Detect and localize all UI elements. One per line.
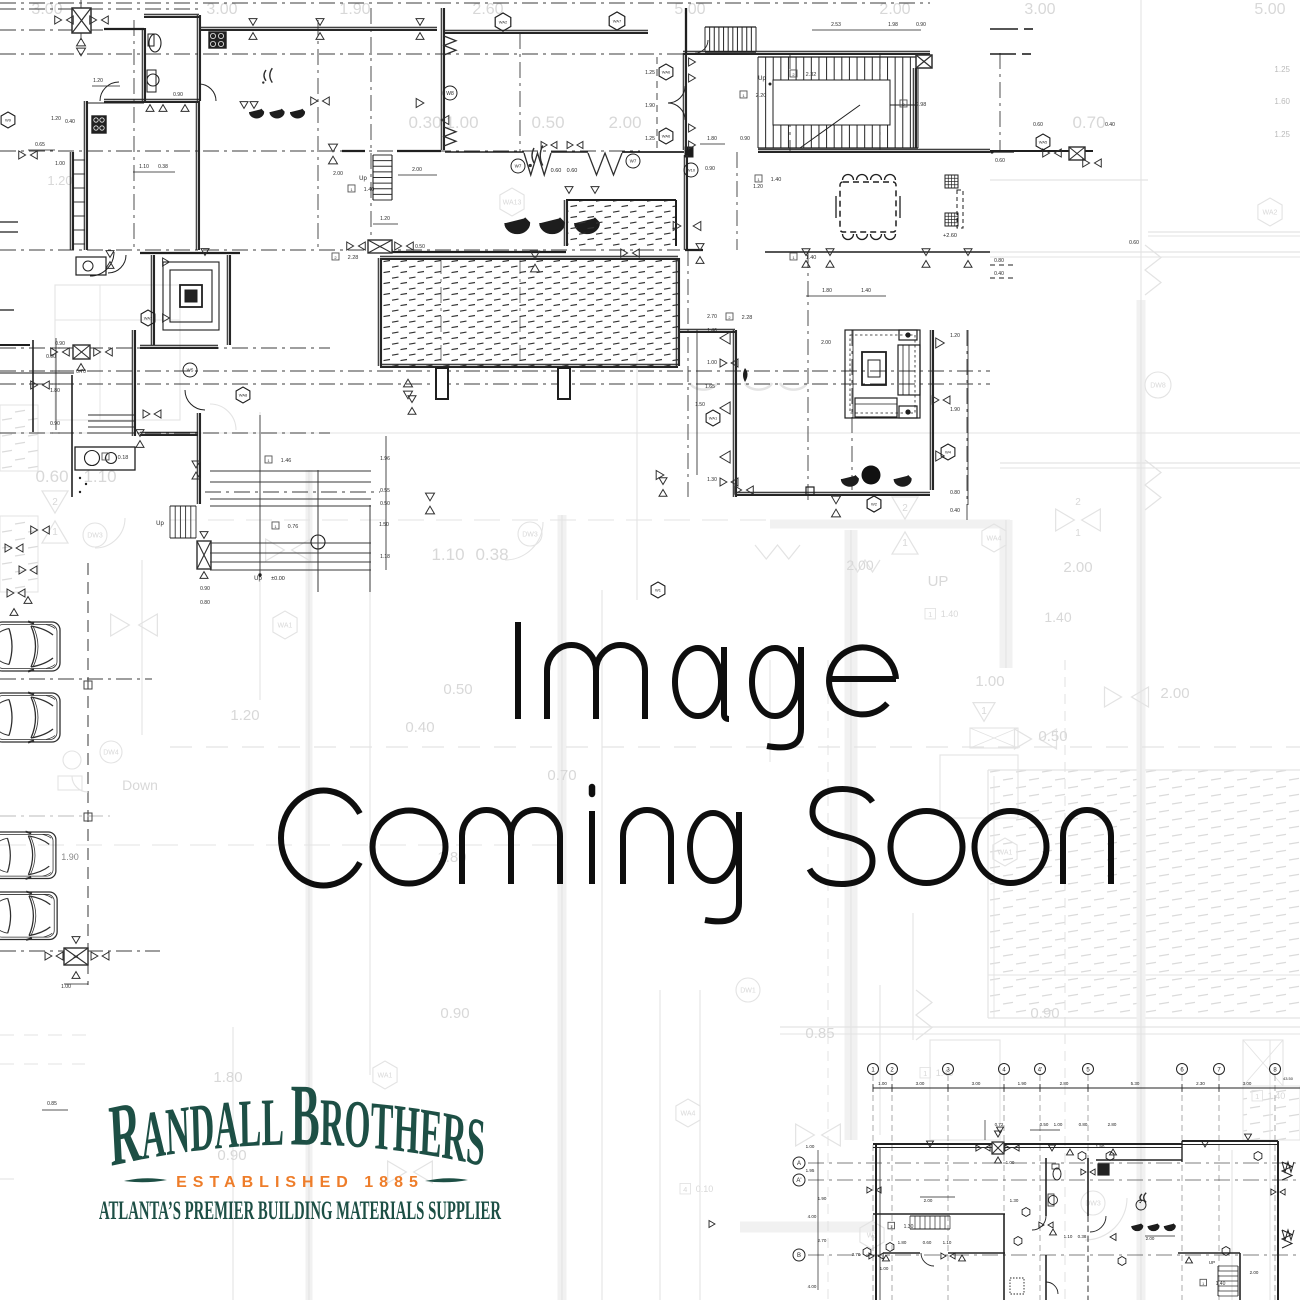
- svg-text:Up: Up: [359, 176, 367, 182]
- svg-text:0.40: 0.40: [1105, 122, 1115, 128]
- svg-text:Up: Up: [156, 521, 164, 527]
- svg-text:1.30: 1.30: [707, 477, 717, 483]
- svg-text:0.80: 0.80: [994, 258, 1004, 264]
- svg-text:DW3: DW3: [87, 533, 103, 540]
- svg-text:1.00: 1.00: [878, 1081, 887, 1086]
- svg-text:1: 1: [890, 1225, 892, 1229]
- svg-text:1: 1: [1255, 1092, 1259, 1101]
- svg-text:2.00: 2.00: [1146, 1236, 1155, 1241]
- svg-text:3.00: 3.00: [1024, 1, 1055, 18]
- svg-text:0.60: 0.60: [923, 1240, 932, 1245]
- svg-text:1.90: 1.90: [339, 1, 370, 18]
- svg-text:0.60: 0.60: [567, 168, 578, 174]
- svg-text:2.00: 2.00: [1160, 685, 1189, 702]
- svg-text:0.10: 0.10: [696, 1184, 714, 1194]
- svg-text:1.10: 1.10: [1064, 1234, 1073, 1239]
- svg-text:1.10: 1.10: [431, 545, 464, 564]
- svg-text:WA1: WA1: [378, 1072, 393, 1079]
- svg-text:DW4: DW4: [103, 750, 119, 757]
- svg-text:1.00: 1.00: [61, 984, 71, 990]
- svg-text:0.90: 0.90: [50, 421, 60, 427]
- svg-text:0.90: 0.90: [200, 586, 210, 592]
- svg-text:0.38: 0.38: [158, 164, 168, 170]
- svg-text:WA8: WA8: [239, 392, 248, 397]
- svg-text:1.65: 1.65: [705, 384, 715, 390]
- svg-text:1.00: 1.00: [1054, 1122, 1063, 1127]
- svg-text:1.80: 1.80: [822, 288, 832, 294]
- svg-text:DW3: DW3: [522, 532, 538, 539]
- svg-text:1.90: 1.90: [1018, 1081, 1027, 1086]
- svg-text:3.00: 3.00: [206, 1, 237, 18]
- svg-text:0.90: 0.90: [916, 22, 926, 28]
- svg-text:1.80: 1.80: [50, 388, 60, 394]
- svg-text:A': A': [796, 1178, 801, 1184]
- svg-text:WA1: WA1: [998, 849, 1013, 856]
- svg-text:1.25: 1.25: [645, 70, 655, 76]
- svg-text:ESTABLISHED 1885: ESTABLISHED 1885: [176, 1174, 424, 1191]
- svg-text:1: 1: [52, 527, 58, 538]
- svg-text:2.00: 2.00: [1063, 559, 1092, 576]
- svg-text:W8: W8: [446, 91, 454, 97]
- svg-text:1.20: 1.20: [51, 116, 61, 122]
- svg-text:2.00: 2.00: [333, 171, 343, 177]
- svg-text:0.70: 0.70: [547, 767, 576, 784]
- svg-text:DW8: DW8: [1150, 383, 1166, 390]
- svg-text:W1: W1: [655, 587, 662, 592]
- svg-text:3.00: 3.00: [972, 1081, 981, 1086]
- svg-text:1: 1: [981, 706, 987, 717]
- svg-text:1.50: 1.50: [379, 522, 389, 528]
- svg-text:1.30: 1.30: [1010, 1198, 1019, 1203]
- svg-text:0.30: 0.30: [408, 113, 441, 132]
- svg-text:W4: W4: [945, 449, 952, 454]
- svg-text:4.98: 4.98: [916, 102, 927, 108]
- svg-text:WA2: WA2: [1263, 209, 1278, 216]
- svg-text:1.40: 1.40: [861, 288, 871, 294]
- svg-text:Up: Up: [254, 576, 262, 582]
- svg-text:1.80: 1.80: [707, 136, 717, 142]
- svg-text:3.70: 3.70: [852, 1252, 861, 1257]
- svg-text:0.50: 0.50: [415, 244, 425, 250]
- svg-text:1.20: 1.20: [230, 707, 259, 724]
- svg-text:0.90: 0.90: [705, 166, 715, 172]
- svg-text:Up: Up: [758, 76, 766, 82]
- svg-text:WA1: WA1: [278, 622, 293, 629]
- svg-text:1: 1: [923, 1069, 927, 1078]
- svg-text:43.50: 43.50: [1283, 1076, 1294, 1081]
- svg-text:1.80: 1.80: [213, 1069, 242, 1086]
- svg-text:1.60: 1.60: [1274, 97, 1290, 106]
- svg-text:WA1: WA1: [709, 415, 718, 420]
- svg-text:DW1: DW1: [740, 988, 756, 995]
- svg-text:0.70: 0.70: [1072, 113, 1105, 132]
- svg-text:1.46: 1.46: [281, 458, 292, 464]
- svg-text:0.55: 0.55: [380, 488, 390, 494]
- svg-text:WA7: WA7: [613, 18, 622, 23]
- svg-text:2.28: 2.28: [348, 255, 359, 261]
- svg-text:1.00: 1.00: [806, 1144, 815, 1149]
- svg-text:1.90: 1.90: [818, 1196, 827, 1201]
- svg-text:ATLANTA’S PREMIER BUILDING MAT: ATLANTA’S PREMIER BUILDING MATERIALS SUP…: [99, 1196, 501, 1225]
- svg-text:1.40: 1.40: [806, 255, 817, 261]
- svg-text:1.40: 1.40: [941, 609, 959, 619]
- svg-text:1.00: 1.00: [707, 360, 717, 366]
- svg-text:0.60: 0.60: [1033, 122, 1043, 128]
- svg-text:1.20: 1.20: [47, 173, 72, 188]
- svg-text:0.60: 0.60: [995, 158, 1005, 164]
- svg-text:2.80: 2.80: [1060, 1081, 1069, 1086]
- svg-text:W7: W7: [515, 164, 522, 169]
- svg-text:0.60: 0.60: [1129, 240, 1139, 246]
- svg-text:2: 2: [1075, 497, 1081, 508]
- svg-text:1.10: 1.10: [943, 1240, 952, 1245]
- svg-text:A: A: [797, 1161, 801, 1167]
- svg-text:W9: W9: [5, 117, 12, 122]
- svg-text:1.90: 1.90: [61, 852, 79, 862]
- svg-text:0.72: 0.72: [995, 1122, 1004, 1127]
- svg-text:0.50: 0.50: [443, 681, 472, 698]
- svg-text:1.95: 1.95: [806, 1168, 815, 1173]
- svg-text:0.90: 0.90: [1030, 1005, 1059, 1022]
- svg-text:1.40: 1.40: [1044, 609, 1071, 625]
- svg-text:4.00: 4.00: [808, 1214, 817, 1219]
- svg-text:0.80: 0.80: [200, 600, 210, 606]
- svg-text:2.70: 2.70: [818, 1238, 827, 1243]
- svg-text:1.18: 1.18: [380, 554, 390, 560]
- svg-text:+2.60: +2.60: [943, 233, 957, 239]
- svg-text:0.40: 0.40: [950, 508, 960, 514]
- svg-text:WA13: WA13: [503, 199, 522, 206]
- svg-text:1.00: 1.00: [880, 1266, 889, 1271]
- svg-text:0.40: 0.40: [994, 271, 1004, 277]
- svg-text:W5: W5: [187, 368, 194, 373]
- svg-text:WA4: WA4: [987, 535, 1002, 542]
- svg-text:1.96: 1.96: [380, 456, 390, 462]
- svg-text:2.20: 2.20: [756, 93, 767, 99]
- svg-text:1.40: 1.40: [1216, 1281, 1226, 1287]
- svg-text:1: 1: [1075, 528, 1081, 539]
- svg-text:1.20: 1.20: [950, 333, 960, 339]
- svg-text:JML: JML: [73, 955, 80, 959]
- svg-text:UP: UP: [928, 573, 949, 590]
- svg-text:2.00: 2.00: [1250, 1270, 1259, 1275]
- svg-text:0.18: 0.18: [118, 455, 129, 461]
- svg-text:0.85: 0.85: [47, 1101, 57, 1107]
- svg-text:1.46: 1.46: [707, 328, 717, 334]
- svg-text:2.00: 2.00: [924, 1198, 933, 1203]
- svg-text:2: 2: [52, 497, 58, 508]
- svg-text:2.28: 2.28: [742, 315, 753, 321]
- svg-text:0.90: 0.90: [55, 341, 65, 347]
- svg-text:0.76: 0.76: [288, 524, 299, 530]
- svg-text:0.40: 0.40: [405, 719, 434, 736]
- svg-text:1.00: 1.00: [55, 161, 65, 167]
- svg-text:1.20: 1.20: [380, 216, 390, 222]
- svg-text:1: 1: [902, 538, 908, 549]
- svg-text:0.60: 0.60: [35, 467, 68, 486]
- svg-text:0.60: 0.60: [551, 168, 562, 174]
- svg-text:1.20: 1.20: [753, 184, 763, 190]
- svg-text:0.50: 0.50: [531, 113, 564, 132]
- svg-text:±0.00: ±0.00: [271, 576, 285, 582]
- svg-text:5.30: 5.30: [1131, 1081, 1140, 1086]
- svg-text:0.50: 0.50: [1040, 1122, 1049, 1127]
- svg-text:2.00: 2.00: [846, 557, 873, 573]
- svg-text:WA6: WA6: [662, 133, 671, 138]
- svg-text:0.40: 0.40: [65, 119, 75, 125]
- svg-text:1.25: 1.25: [645, 136, 655, 142]
- svg-text:W10: W10: [687, 167, 696, 172]
- svg-text:1.90: 1.90: [645, 103, 655, 109]
- svg-text:5.00: 5.00: [1254, 1, 1285, 18]
- svg-text:1.25: 1.25: [1274, 130, 1290, 139]
- svg-text:0.65: 0.65: [35, 142, 45, 148]
- svg-text:1.90: 1.90: [1096, 1144, 1105, 1149]
- svg-text:1.90: 1.90: [950, 407, 960, 413]
- svg-text:2.00: 2.00: [608, 113, 641, 132]
- svg-text:1.25: 1.25: [1274, 65, 1290, 74]
- svg-text:5.00: 5.00: [674, 1, 705, 18]
- svg-text:0.80: 0.80: [1079, 1122, 1088, 1127]
- svg-text:4.00: 4.00: [808, 1284, 817, 1289]
- svg-text:WA7: WA7: [144, 315, 153, 320]
- svg-text:1.10: 1.10: [139, 164, 149, 170]
- svg-text:0.90: 0.90: [740, 136, 750, 142]
- svg-text:0.85: 0.85: [805, 1025, 834, 1042]
- svg-text:WA6: WA6: [662, 69, 671, 74]
- svg-text:3.00: 3.00: [1243, 1081, 1252, 1086]
- svg-text:WA4: WA4: [681, 1110, 696, 1117]
- svg-text:W7: W7: [630, 159, 637, 164]
- svg-text:1.98: 1.98: [888, 22, 898, 28]
- svg-text:2.00: 2.00: [412, 167, 422, 173]
- svg-text:1: 1: [1202, 1282, 1204, 1286]
- svg-text:2.30: 2.30: [1196, 1081, 1205, 1086]
- svg-text:W2: W2: [871, 501, 878, 506]
- svg-text:1.40: 1.40: [364, 187, 375, 193]
- svg-text:WA5: WA5: [1039, 139, 1048, 144]
- svg-text:0.90: 0.90: [173, 92, 183, 98]
- svg-text:0.90: 0.90: [440, 1005, 469, 1022]
- svg-text:2.00: 2.00: [821, 340, 831, 346]
- svg-text:4': 4': [1038, 1068, 1042, 1074]
- svg-text:B: B: [797, 1253, 801, 1259]
- svg-text:UP: UP: [1209, 1260, 1215, 1265]
- svg-text:1.40: 1.40: [1268, 1091, 1286, 1101]
- svg-text:2.70: 2.70: [707, 314, 717, 320]
- svg-text:0.50: 0.50: [380, 501, 390, 507]
- svg-text:1.00: 1.00: [1006, 1160, 1015, 1165]
- svg-text:1: 1: [928, 610, 932, 619]
- svg-text:1.80: 1.80: [898, 1240, 907, 1245]
- svg-text:2.80: 2.80: [1108, 1122, 1117, 1127]
- svg-text:2.53: 2.53: [831, 22, 841, 28]
- svg-text:0.50: 0.50: [1038, 728, 1067, 745]
- svg-text:0.38: 0.38: [1078, 1234, 1087, 1239]
- svg-text:1.30: 1.30: [904, 1224, 914, 1230]
- svg-text:3.00: 3.00: [916, 1081, 925, 1086]
- svg-text:4: 4: [683, 1185, 687, 1194]
- svg-text:0.80: 0.80: [950, 490, 960, 496]
- svg-text:Down: Down: [122, 777, 158, 793]
- svg-text:3.00: 3.00: [31, 1, 62, 18]
- svg-text:2: 2: [902, 503, 908, 514]
- svg-text:WA2: WA2: [499, 19, 508, 24]
- svg-text:0.38: 0.38: [475, 545, 508, 564]
- svg-text:1.00: 1.00: [975, 673, 1004, 690]
- svg-text:1.20: 1.20: [93, 78, 103, 84]
- svg-text:2.32: 2.32: [806, 72, 817, 78]
- svg-text:1.40: 1.40: [771, 177, 782, 183]
- svg-text:2.00: 2.00: [879, 1, 910, 18]
